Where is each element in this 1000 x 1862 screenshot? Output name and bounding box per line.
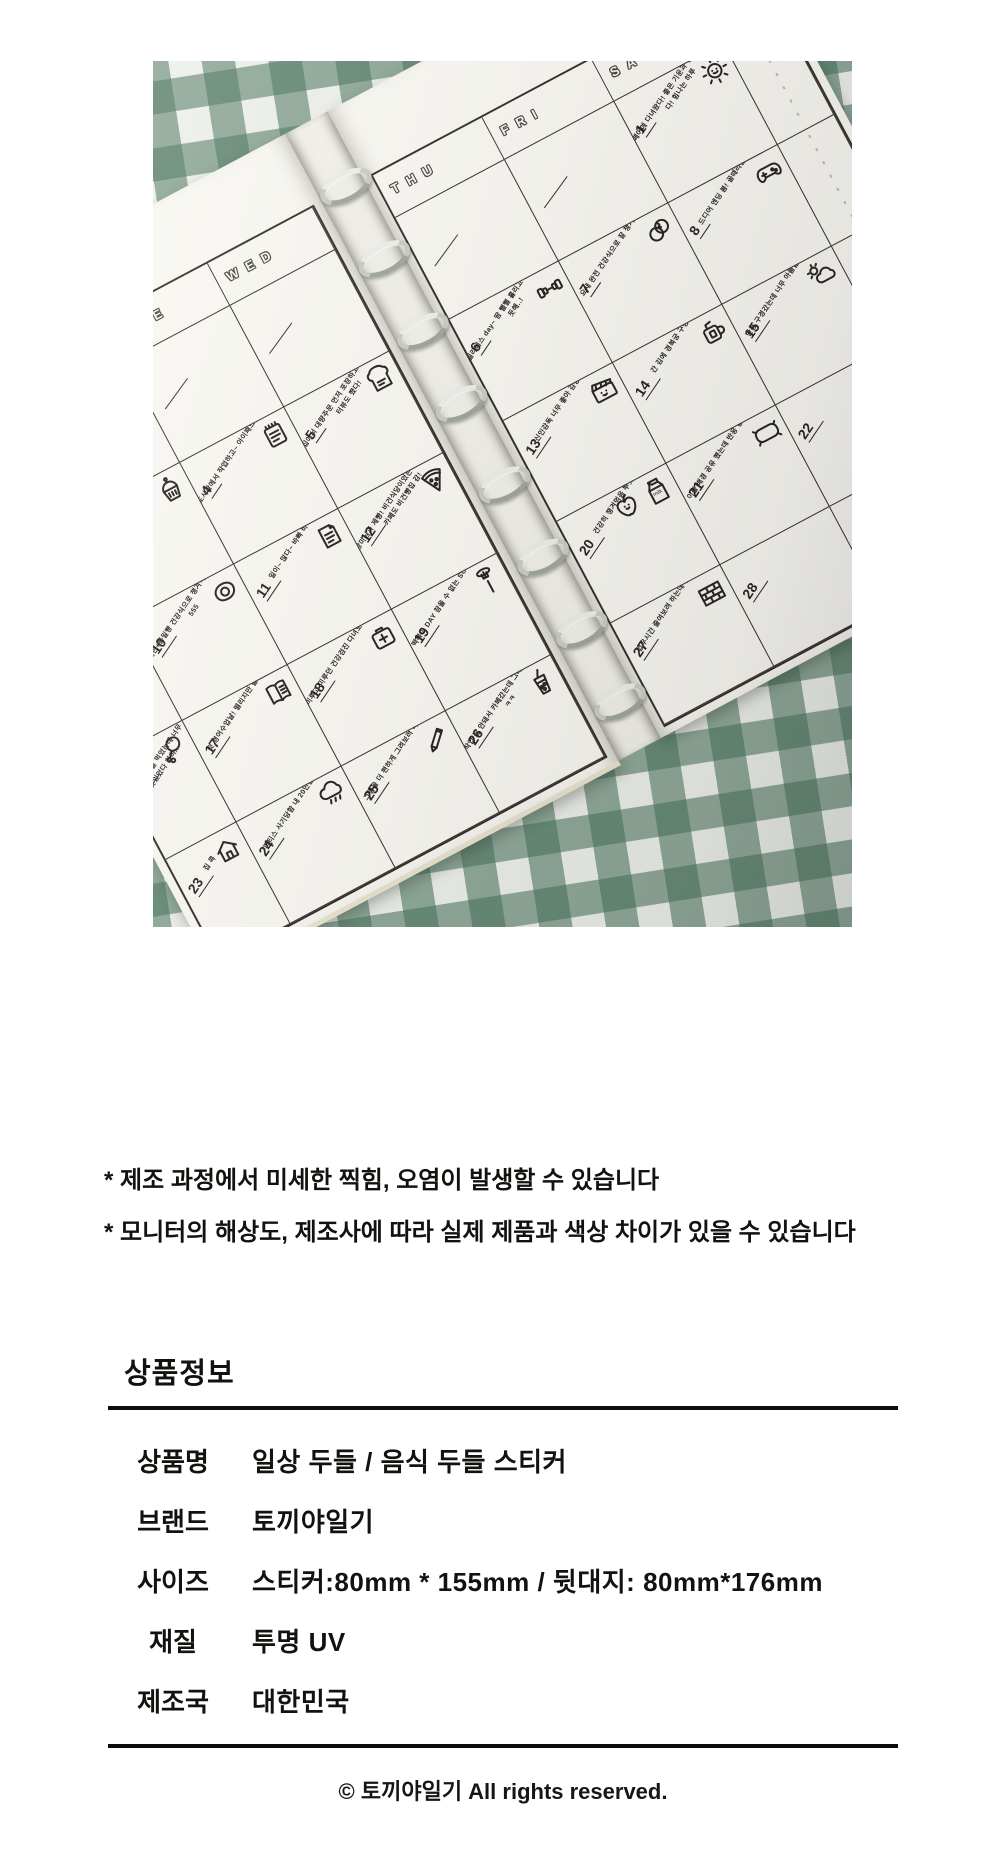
product-info-value: 대한민국	[238, 1682, 350, 1719]
day-label: THU	[388, 158, 442, 196]
product-info-heading: 상품정보	[124, 1350, 898, 1392]
product-info-row: 제조국대한민국	[108, 1684, 898, 1716]
date-mark	[165, 379, 188, 410]
product-info-label: 제조국	[108, 1682, 238, 1719]
product-info-label: 사이즈	[108, 1562, 238, 1599]
product-info-value: 일상 두들 / 음식 두들 스티커	[238, 1442, 567, 1479]
date-mark	[544, 176, 568, 208]
product-photo: 101123456789 MONTUEWED3일이 잘 안되면 설탕을 섭취한다…	[153, 61, 852, 927]
product-info-row: 브랜드토끼야일기	[108, 1504, 898, 1536]
product-info-row: 재질투명 UV	[108, 1624, 898, 1656]
product-info-value: 스티커:80mm * 155mm / 뒷대지: 80mm*176mm	[238, 1562, 823, 1599]
product-info-row: 사이즈스티커:80mm * 155mm / 뒷대지: 80mm*176mm	[108, 1564, 898, 1596]
date-mark	[435, 234, 459, 266]
product-info-label: 브랜드	[108, 1502, 238, 1539]
day-label: SAT	[607, 61, 660, 80]
product-info-label: 재질	[108, 1622, 238, 1659]
product-info-value: 투명 UV	[238, 1622, 346, 1659]
date-mark	[269, 323, 292, 354]
note-line-1: * 제조 과정에서 미세한 찍힘, 오염이 발생할 수 있습니다	[104, 1160, 856, 1195]
note-line-2: * 모니터의 해상도, 제조사에 따라 실제 제품과 색상 차이가 있을 수 있…	[104, 1212, 856, 1247]
product-info-row: 상품명일상 두들 / 음식 두들 스티커	[108, 1444, 898, 1476]
product-info-label: 상품명	[108, 1442, 238, 1479]
date-number: 28	[739, 572, 768, 603]
date-number: 22	[795, 412, 824, 443]
day-label: FRI	[498, 102, 547, 138]
page: 101123456789 MONTUEWED3일이 잘 안되면 설탕을 섭취한다…	[0, 0, 1000, 1862]
copyright: © 토끼야일기 All rights reserved.	[108, 1774, 898, 1806]
product-info-table: 상품명일상 두들 / 음식 두들 스티커브랜드토끼야일기사이즈스티커:80mm …	[108, 1410, 898, 1744]
product-info-value: 토끼야일기	[238, 1502, 374, 1539]
day-label: WED	[224, 244, 282, 284]
product-info-section: 상품정보 상품명일상 두들 / 음식 두들 스티커브랜드토끼야일기사이즈스티커:…	[108, 1350, 898, 1806]
day-label: TUE	[153, 302, 173, 340]
manufacturing-notes: * 제조 과정에서 미세한 찍힘, 오염이 발생할 수 있습니다 * 모니터의 …	[104, 1160, 856, 1264]
divider-bottom	[108, 1744, 898, 1748]
